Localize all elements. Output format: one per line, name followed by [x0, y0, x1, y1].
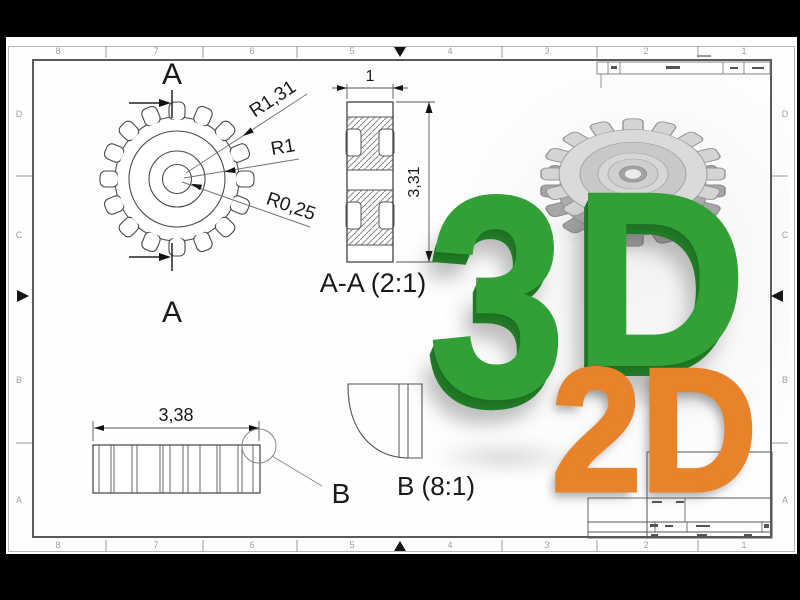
section-label-bottom: A — [162, 296, 182, 329]
section-view-caption: A-A (2:1) — [320, 268, 427, 298]
side-view-width-dim: 3,38 — [158, 405, 193, 425]
overlay-2d-text: 2D — [552, 343, 757, 517]
section-height-dim: 3,31 — [406, 166, 423, 197]
section-label-top: A — [162, 58, 182, 91]
radius-label-mid: R1 — [269, 135, 297, 160]
section-width-dim: 1 — [366, 68, 375, 85]
section-view: 1 3,31 A-A (2:1) — [320, 68, 435, 298]
gear-front-view — [100, 102, 254, 256]
radius-label-outer: R1,31 — [246, 77, 300, 122]
radius-label-bore: R0,25 — [263, 188, 318, 225]
side-view: 3,38 B — [93, 405, 350, 509]
detail-callout-letter: B — [332, 478, 351, 509]
detail-callout-leader — [272, 456, 322, 486]
cad-drawing-thumbnail: 8 7 6 5 4 3 2 1 8 7 6 5 4 3 2 1 D C B A … — [0, 0, 800, 600]
